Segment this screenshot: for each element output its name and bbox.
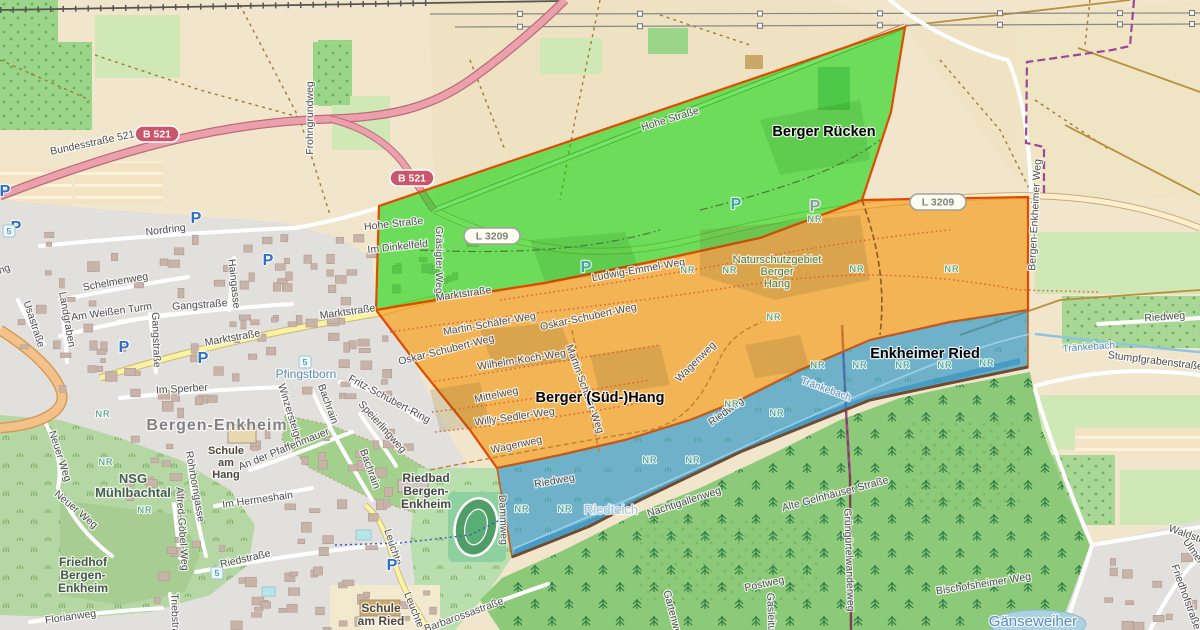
place-label: Hang: [212, 469, 240, 481]
place-label: Mühlbachtal: [95, 485, 171, 500]
svg-text:B 521: B 521: [143, 129, 171, 141]
place-label: am Ried: [358, 614, 405, 628]
water-label: Gänseweiher: [989, 613, 1077, 630]
parking-icon: P: [810, 198, 821, 215]
nature-reserve-marker: NR: [945, 264, 960, 274]
place-label: Schule: [361, 601, 401, 615]
parking-icon: P: [731, 196, 742, 213]
map-canvas[interactable]: Bundesstraße 521FrohngrundwegHohe Straße…: [0, 0, 1200, 630]
place-label: Schule: [208, 445, 244, 457]
street-label: Dammweg: [496, 495, 510, 546]
nature-reserve-marker: NR: [515, 504, 530, 514]
water-label: Pfingstborn: [276, 367, 337, 381]
route-badge: 5: [211, 567, 223, 579]
street-label: Triebstraße: [168, 593, 182, 630]
nature-reserve-marker: NR: [850, 264, 865, 274]
svg-text:B 521: B 521: [398, 173, 426, 185]
svg-text:5: 5: [303, 357, 308, 367]
parking-icon: P: [198, 350, 209, 367]
place-label: Bergen-: [60, 568, 105, 582]
place-label: Friedhof: [59, 555, 108, 569]
road-shield: B 521: [390, 170, 434, 186]
nature-reserve-marker: NR: [767, 312, 782, 322]
street-label: Gangstraße: [149, 312, 163, 368]
parking-icon: P: [0, 183, 11, 200]
parking-icon: P: [119, 339, 130, 356]
nature-reserve-marker: NR: [558, 504, 573, 514]
place-label: Bergen-: [403, 484, 448, 498]
parking-icon: P: [387, 557, 398, 574]
nature-reserve-label: Berger: [760, 266, 793, 278]
nature-reserve-marker: NR: [99, 457, 114, 467]
route-badge: 5: [3, 225, 15, 237]
nature-reserve-label: Hang: [764, 278, 790, 290]
zone-label-berger-ruecken: Berger Rücken: [772, 124, 875, 140]
road-shield: L 3209: [464, 228, 520, 244]
nature-reserve-marker: NR: [853, 360, 868, 370]
nature-reserve-marker: NR: [980, 358, 995, 368]
place-label: am: [218, 457, 234, 469]
nature-reserve-marker: NR: [770, 408, 785, 418]
svg-text:L 3209: L 3209: [476, 231, 509, 243]
street-label: Gräsigter Weg: [433, 226, 445, 294]
nature-reserve-marker: NR: [808, 214, 823, 224]
nature-reserve-marker: NR: [686, 455, 701, 465]
parking-icon: P: [263, 252, 274, 269]
svg-text:5: 5: [7, 226, 12, 236]
route-badge: 5: [299, 356, 311, 368]
water-label: Riedteich: [584, 502, 638, 517]
street-label: Gasleitung: [764, 593, 778, 630]
street-label: Frohngrundweg: [304, 81, 316, 155]
parking-icon: P: [581, 259, 592, 276]
road-shield: B 521: [135, 126, 179, 142]
nature-reserve-marker: NR: [811, 360, 826, 370]
place-label: Riedbad: [402, 471, 449, 485]
nature-reserve-marker: NR: [723, 265, 738, 275]
place-label: Enkheim: [401, 497, 451, 511]
nature-reserve-marker: NR: [938, 360, 953, 370]
nature-reserve-marker: NR: [138, 505, 153, 515]
place-label: Bergen-Enkheim: [146, 417, 287, 434]
nature-reserve-marker: NR: [896, 360, 911, 370]
svg-text:5: 5: [215, 568, 220, 578]
nature-reserve-marker: NR: [643, 455, 658, 465]
nature-reserve-marker: NR: [725, 399, 740, 409]
zone-label-berger-sued-hang: Berger (Süd-)Hang: [536, 390, 665, 406]
nature-reserve-marker: NR: [96, 409, 111, 419]
place-label: Enkheim: [58, 581, 108, 595]
svg-text:L 3209: L 3209: [922, 197, 955, 209]
nature-reserve-label: Naturschutzgebiet: [733, 254, 822, 266]
place-label: NSG: [119, 471, 147, 486]
road-shield: L 3209: [910, 194, 966, 210]
zone-label-enkheimer-ried: Enkheimer Ried: [870, 346, 980, 362]
parking-icon: P: [191, 210, 202, 227]
nature-reserve-marker: NR: [681, 265, 696, 275]
